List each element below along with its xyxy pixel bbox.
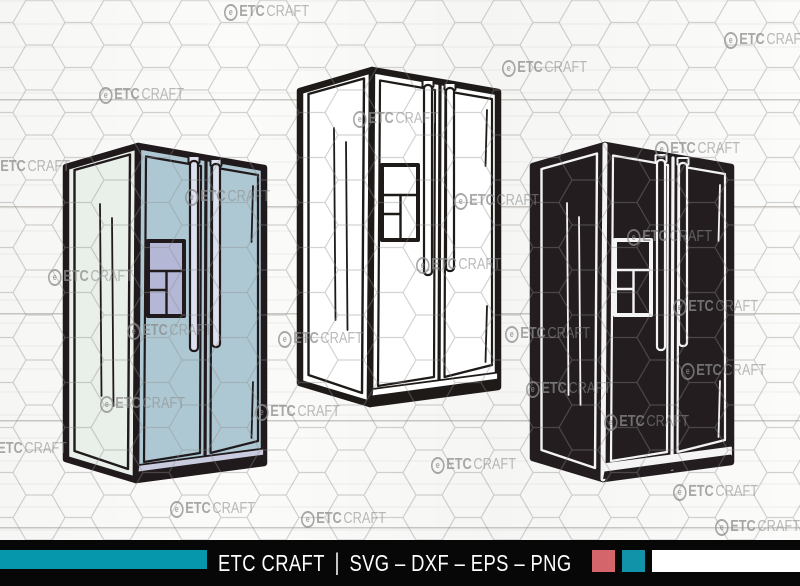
artboard: eETCCRAFTeETCCRAFTeETCCRAFTeETCCRAFTeETC… [0, 0, 800, 586]
refrigerator-illustration-silhouette [525, 135, 741, 491]
refrigerator-illustration-outline [292, 60, 508, 416]
color-swatch-white [652, 550, 800, 572]
divider: | [334, 549, 341, 577]
color-swatch-teal [622, 550, 645, 572]
brand-name: ETC CRAFT [218, 550, 325, 577]
refrigerator-illustration-blue [58, 136, 274, 492]
footer-text: ETC CRAFT | SVG – DXF – EPS – PNG [218, 540, 572, 586]
footer-teal-bar [0, 550, 207, 569]
color-swatch-red [592, 550, 615, 572]
footer-banner: ETC CRAFT | SVG – DXF – EPS – PNG [0, 540, 800, 586]
file-formats: SVG – DXF – EPS – PNG [349, 550, 571, 577]
